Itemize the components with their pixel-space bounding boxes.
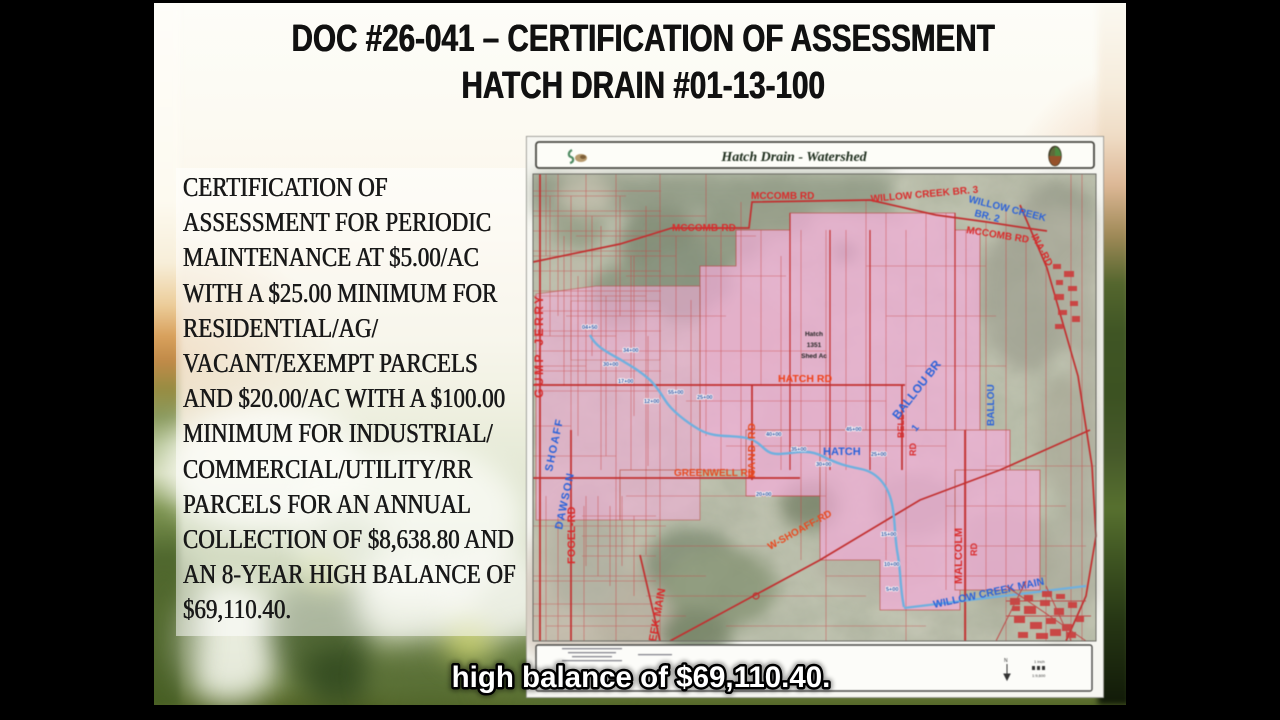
svg-text:HATCH: HATCH [823,446,861,458]
svg-text:high balance of $69,110.40.: high balance of $69,110.40. [452,661,831,694]
svg-text:BALLOU: BALLOU [986,384,997,426]
svg-text:Hatch: Hatch [805,331,823,338]
svg-text:GUMP-JERRY: GUMP-JERRY [532,293,546,398]
svg-text:10+00: 10+00 [884,562,899,568]
svg-text:30+00: 30+00 [603,362,618,368]
svg-text:40+00: 40+00 [766,432,781,438]
svg-text:RD: RD [908,443,918,456]
svg-text:35+00: 35+00 [791,447,806,453]
svg-text:25+00: 25+00 [697,395,712,401]
svg-text:12+00: 12+00 [644,399,659,405]
svg-text:1351: 1351 [807,342,822,349]
svg-text:34+00: 34+00 [623,348,638,354]
svg-text:HATCH RD: HATCH RD [778,373,832,385]
svg-text:20+00: 20+00 [756,492,771,498]
svg-text:30+00: 30+00 [816,462,831,468]
svg-text:MCCOMB RD: MCCOMB RD [751,191,814,202]
svg-text:MCCOMB-RD: MCCOMB-RD [672,223,736,234]
svg-text:17+00: 17+00 [618,379,633,385]
svg-text:Shed Ac: Shed Ac [801,353,827,360]
svg-text:HAND-RD: HAND-RD [746,422,758,478]
svg-text:25+00: 25+00 [871,452,886,458]
svg-text:MALCOLM: MALCOLM [953,528,965,584]
svg-text:45+00: 45+00 [846,427,861,433]
svg-text:15+00: 15+00 [881,532,896,538]
svg-text:Hatch Drain - Watershed: Hatch Drain - Watershed [720,150,867,165]
svg-text:RD: RD [969,543,979,556]
svg-text:04+50: 04+50 [582,325,597,331]
svg-text:GREENWELL RD: GREENWELL RD [674,468,755,479]
svg-text:55+00: 55+00 [668,390,683,396]
svg-text:5+00: 5+00 [886,587,898,593]
